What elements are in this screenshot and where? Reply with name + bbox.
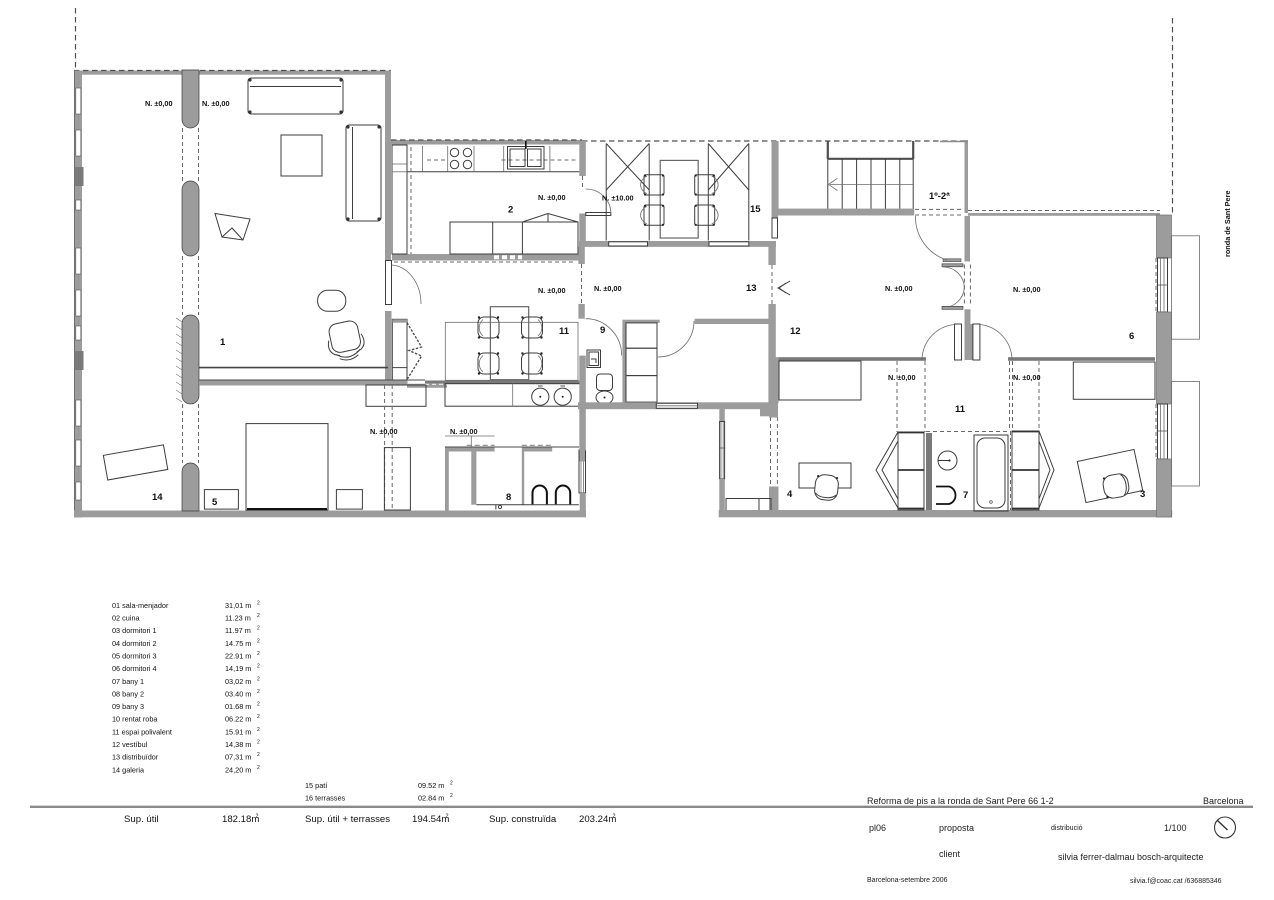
svg-text:N. ±0,00: N. ±0,00 [1013, 373, 1041, 382]
svg-text:6: 6 [1129, 331, 1134, 342]
svg-text:N. ±0,00: N. ±0,00 [1013, 285, 1041, 294]
svg-text:2: 2 [257, 702, 260, 708]
svg-text:06.22 m: 06.22 m [225, 715, 251, 724]
svg-text:Reforma de pis a la ronda de S: Reforma de pis a la ronda de Sant Pere 6… [867, 796, 1054, 806]
svg-text:16 terrasses: 16 terrasses [305, 793, 346, 802]
svg-text:10 rentat roba: 10 rentat roba [112, 715, 158, 724]
svg-text:Barcelona: Barcelona [1203, 796, 1244, 806]
svg-text:4: 4 [787, 489, 793, 500]
svg-text:distribució: distribució [1051, 825, 1083, 832]
svg-text:03.40 m: 03.40 m [225, 689, 251, 698]
svg-text:09.52 m: 09.52 m [418, 781, 444, 790]
svg-text:01.68 m: 01.68 m [225, 702, 251, 711]
svg-text:2: 2 [257, 601, 260, 607]
svg-text:2: 2 [257, 651, 260, 657]
svg-text:02.84 m: 02.84 m [418, 793, 444, 802]
svg-text:N. ±0,00: N. ±0,00 [450, 427, 478, 436]
svg-text:05 dormitori 3: 05 dormitori 3 [112, 652, 157, 661]
svg-text:2: 2 [257, 689, 260, 695]
svg-text:2: 2 [257, 626, 260, 632]
svg-text:2: 2 [257, 740, 260, 746]
svg-text:06 dormitori 4: 06 dormitori 4 [112, 664, 157, 673]
svg-text:14,38 m: 14,38 m [225, 740, 251, 749]
svg-text:12 vestíbul: 12 vestíbul [112, 740, 148, 749]
svg-text:14 galeria: 14 galeria [112, 765, 145, 774]
svg-text:N. ±0,00: N. ±0,00 [370, 427, 398, 436]
svg-text:03 dormitori 1: 03 dormitori 1 [112, 626, 157, 635]
svg-text:Sup. útil + terrasses: Sup. útil + terrasses [305, 814, 390, 825]
svg-text:14.75 m: 14.75 m [225, 639, 251, 648]
svg-text:15 patí: 15 patí [305, 781, 327, 790]
svg-text:09 bany 3: 09 bany 3 [112, 702, 144, 711]
svg-text:02 cuina: 02 cuina [112, 614, 141, 623]
svg-text:8: 8 [506, 492, 511, 503]
svg-text:03,02 m: 03,02 m [225, 677, 251, 686]
svg-text:N. ±0,00: N. ±0,00 [538, 193, 566, 202]
svg-text:2: 2 [257, 714, 260, 720]
svg-text:9: 9 [600, 325, 605, 336]
svg-text:silvia ferrer-dalmau bosch-arq: silvia ferrer-dalmau bosch-arquitecte [1058, 852, 1204, 862]
svg-text:2: 2 [613, 814, 616, 820]
svg-text:Sup. útil: Sup. útil [124, 814, 159, 825]
svg-text:11 espai polivalent: 11 espai polivalent [112, 727, 172, 736]
svg-text:N. ±10.00: N. ±10.00 [602, 194, 634, 203]
svg-text:15.91 m: 15.91 m [225, 727, 251, 736]
svg-text:11.97 m: 11.97 m [225, 626, 251, 635]
svg-text:1/100: 1/100 [1164, 823, 1187, 833]
svg-text:2: 2 [257, 727, 260, 733]
svg-text:01 sala-menjador: 01 sala-menjador [112, 601, 169, 610]
svg-text:2: 2 [257, 752, 260, 758]
svg-text:N. ±0,00: N. ±0,00 [888, 373, 916, 382]
svg-text:22.91 m: 22.91 m [225, 652, 251, 661]
svg-text:07,31 m: 07,31 m [225, 753, 251, 762]
svg-text:Sup. construïda: Sup. construïda [489, 814, 557, 825]
svg-text:04 dormitori 2: 04 dormitori 2 [112, 639, 157, 648]
svg-text:2: 2 [257, 613, 260, 619]
svg-text:silvia.f@coac.cat /636885346: silvia.f@coac.cat /636885346 [1130, 878, 1222, 885]
svg-text:31,01 m: 31,01 m [225, 601, 251, 610]
svg-text:proposta: proposta [939, 823, 974, 833]
svg-text:14: 14 [152, 492, 163, 503]
svg-text:203.24m: 203.24m [579, 814, 616, 825]
svg-text:12: 12 [790, 326, 801, 337]
svg-text:07 bany 1: 07 bany 1 [112, 677, 144, 686]
svg-text:N. ±0,00: N. ±0,00 [885, 284, 913, 293]
svg-text:N. ±0,00: N. ±0,00 [594, 284, 622, 293]
svg-text:ronda de Sant Pere: ronda de Sant Pere [1223, 190, 1232, 257]
svg-text:2: 2 [450, 793, 453, 799]
svg-text:client: client [939, 849, 961, 859]
svg-text:N. ±0,00: N. ±0,00 [145, 99, 173, 108]
svg-text:N. ±0,00: N. ±0,00 [202, 99, 230, 108]
svg-text:14,19 m: 14,19 m [225, 664, 251, 673]
svg-text:2: 2 [446, 814, 449, 820]
svg-text:182.18m: 182.18m [222, 814, 259, 825]
svg-text:2: 2 [256, 814, 259, 820]
svg-text:13: 13 [746, 283, 757, 294]
svg-text:2: 2 [257, 676, 260, 682]
svg-text:pl06: pl06 [869, 823, 886, 833]
svg-text:2: 2 [257, 638, 260, 644]
svg-text:11: 11 [955, 404, 966, 415]
svg-text:11: 11 [559, 326, 570, 337]
svg-text:5: 5 [212, 497, 218, 508]
svg-text:2: 2 [450, 781, 453, 787]
svg-text:24,20 m: 24,20 m [225, 765, 251, 774]
svg-text:13 distribuïdor: 13 distribuïdor [112, 753, 159, 762]
svg-text:2: 2 [508, 205, 513, 216]
svg-text:194.54m: 194.54m [412, 814, 449, 825]
svg-text:3: 3 [1140, 489, 1145, 500]
svg-text:2: 2 [257, 765, 260, 771]
svg-text:Barcelona-setembre 2006: Barcelona-setembre 2006 [867, 877, 948, 884]
svg-text:08 bany 2: 08 bany 2 [112, 689, 144, 698]
svg-text:11.23 m: 11.23 m [225, 614, 251, 623]
svg-text:1º-2ª: 1º-2ª [929, 191, 950, 202]
svg-text:N. ±0,00: N. ±0,00 [538, 286, 566, 295]
svg-text:15: 15 [750, 204, 761, 215]
svg-text:1: 1 [220, 337, 226, 348]
svg-text:2: 2 [257, 664, 260, 670]
svg-text:7: 7 [963, 490, 968, 501]
